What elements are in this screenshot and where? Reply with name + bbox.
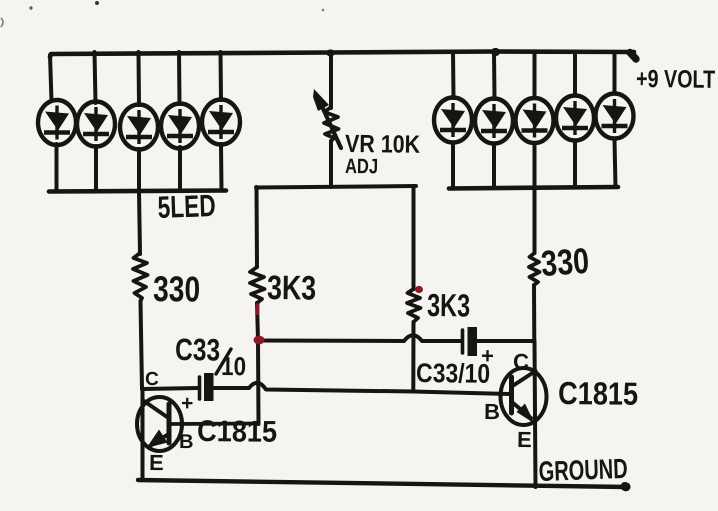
svg-text:5LED: 5LED	[157, 188, 216, 225]
svg-text:+: +	[181, 392, 194, 415]
svg-text:E: E	[517, 427, 532, 452]
svg-text:3K3: 3K3	[427, 287, 470, 323]
svg-text:GROUND: GROUND	[538, 453, 628, 487]
svg-text:C1815: C1815	[558, 375, 638, 412]
svg-text:B: B	[484, 399, 500, 424]
svg-text:10: 10	[221, 351, 246, 381]
svg-text:ADJ: ADJ	[345, 155, 378, 178]
svg-text:B: B	[179, 431, 194, 453]
svg-text:+: +	[481, 343, 494, 368]
svg-text:C33/10: C33/10	[416, 358, 490, 389]
svg-text:C: C	[513, 349, 529, 374]
svg-text:E: E	[149, 450, 164, 475]
svg-text:+9 VOLT: +9 VOLT	[636, 65, 715, 94]
svg-text:3K3: 3K3	[267, 269, 316, 308]
svg-text:C33: C33	[175, 332, 220, 367]
svg-text:330: 330	[153, 268, 200, 309]
svg-text:330: 330	[540, 240, 591, 284]
svg-text:C: C	[145, 369, 159, 390]
svg-text:C1815: C1815	[197, 415, 277, 449]
